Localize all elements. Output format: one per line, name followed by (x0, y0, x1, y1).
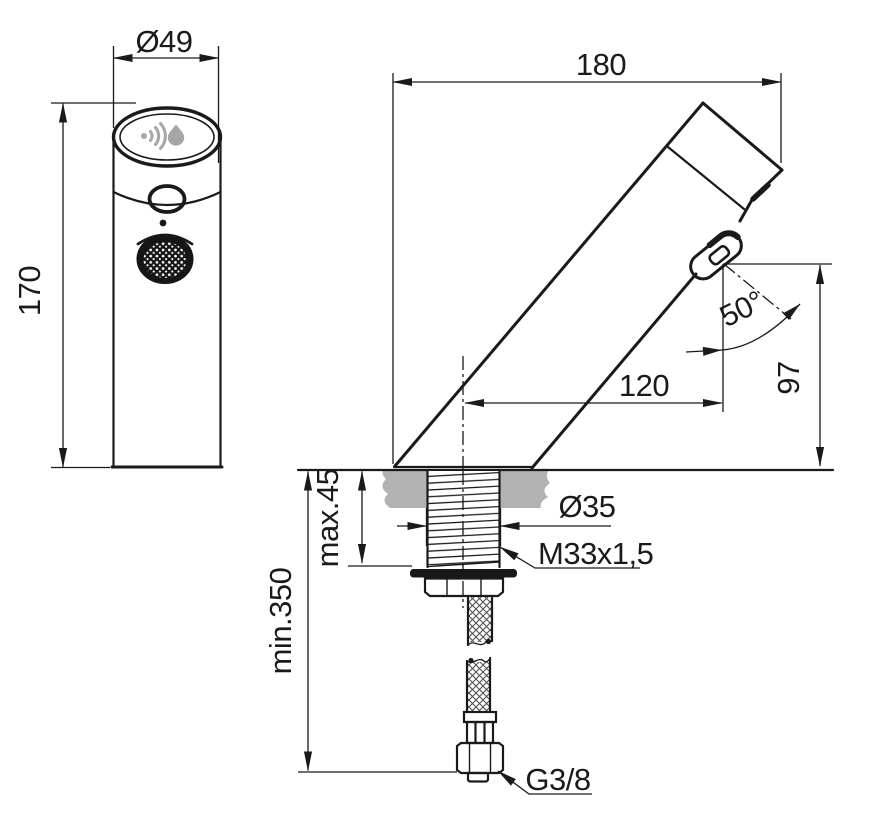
dim-supply-connection-label: G3/8 (525, 762, 590, 797)
dim-body-height-label: 170 (12, 266, 47, 316)
dim-top-diameter-label: Ø49 (135, 24, 192, 59)
water-drop-icon (168, 125, 184, 146)
sensor-waves-icon (141, 124, 165, 149)
faucet-side-body (394, 103, 782, 468)
technical-drawing-canvas: Ø49 170 180 (0, 0, 877, 839)
dim-outlet-height: 97 (771, 265, 820, 466)
front-view: Ø49 170 (12, 24, 222, 468)
cap-chamfer (753, 185, 768, 199)
threaded-shank (428, 470, 500, 567)
dim-shank-thread-label: M33x1,5 (538, 536, 653, 571)
washer (410, 569, 517, 578)
g38-hex-nut (457, 743, 503, 773)
hose-connector-cage (467, 722, 493, 743)
technical-drawing: Ø49 170 180 (0, 0, 877, 839)
aerator (138, 235, 193, 283)
flexible-hose (457, 596, 503, 782)
head-top-face (114, 108, 221, 166)
indicator-dot (160, 220, 167, 227)
dim-body-height: 170 (12, 103, 136, 468)
dim-top-diameter: Ø49 (114, 24, 219, 163)
mounting-nut (425, 579, 503, 597)
dim-hole-diameter-label: Ø35 (558, 489, 615, 524)
dim-spout-angle: 50° (686, 264, 832, 412)
head-bottom-arc (114, 192, 221, 205)
dim-max-deck-thickness-label: max.45 (310, 469, 345, 568)
spout-nozzle (686, 228, 747, 284)
dim-total-depth-label: 180 (576, 47, 626, 82)
head-top-face-inner-ring (120, 114, 214, 160)
hose-collar (464, 712, 496, 722)
dim-shank-thread: M33x1,5 (500, 536, 653, 571)
dim-outlet-height-label: 97 (771, 361, 806, 394)
dim-spout-reach: 120 (465, 368, 722, 403)
connector-stub (468, 773, 488, 782)
cap-end-face (703, 103, 782, 170)
cap-joint-line (668, 147, 744, 209)
dim-spout-reach-label: 120 (619, 368, 669, 403)
sensor-window (150, 186, 185, 212)
side-view: 180 (263, 47, 833, 797)
dim-min-clearance-label: min.350 (263, 567, 298, 674)
dim-supply-connection: G3/8 (498, 762, 592, 797)
